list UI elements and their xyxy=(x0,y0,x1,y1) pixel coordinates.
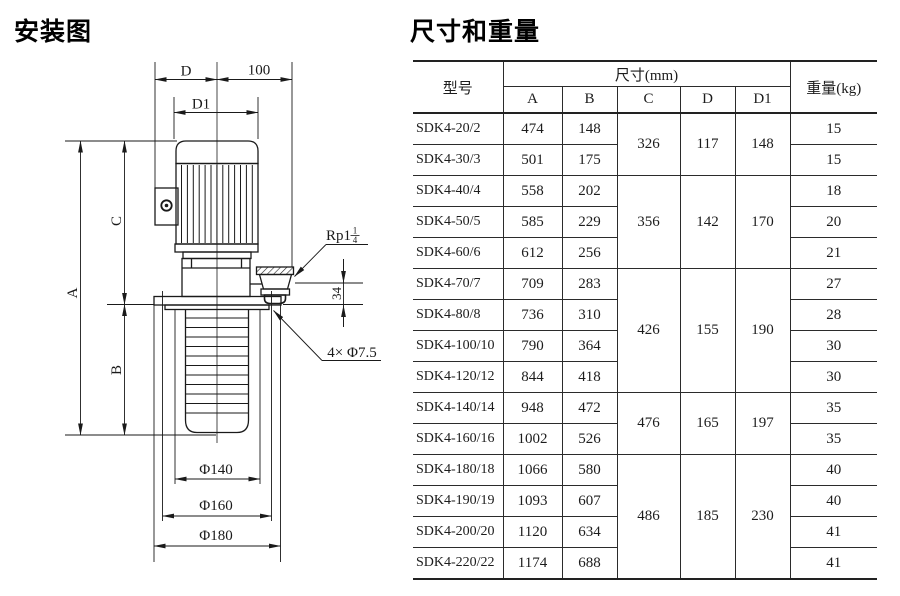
cell-model: SDK4-140/14 xyxy=(413,393,503,424)
terminal-box xyxy=(155,188,178,225)
cell-weight: 35 xyxy=(790,424,877,455)
cell-d1-merged: 190 xyxy=(735,269,790,393)
installation-drawing: D 100 D1 A C B 34 Φ140 Φ160 Φ180 4× Φ7.5… xyxy=(0,0,410,596)
cell-d-merged: 155 xyxy=(680,269,735,393)
cell-weight: 15 xyxy=(790,145,877,176)
dim-label-100: 100 xyxy=(248,63,271,79)
cell-a: 736 xyxy=(503,300,562,331)
cell-c-merged: 476 xyxy=(617,393,680,455)
cell-b: 202 xyxy=(562,176,617,207)
cell-a: 501 xyxy=(503,145,562,176)
dim-label-a: A xyxy=(65,287,81,298)
holes-label: 4× Φ7.5 xyxy=(327,345,376,361)
header-col-d1: D1 xyxy=(735,87,790,114)
dim-label-d: D xyxy=(181,64,192,80)
header-col-b: B xyxy=(562,87,617,114)
cell-a: 474 xyxy=(503,113,562,145)
pump-head xyxy=(182,259,250,297)
cell-b: 688 xyxy=(562,548,617,580)
motor-fins xyxy=(182,165,253,243)
header-row-1: 型号 尺寸(mm) 重量(kg) xyxy=(413,61,877,87)
cell-c-merged: 326 xyxy=(617,113,680,176)
table-row: SDK4-180/18106658048618523040 xyxy=(413,455,877,486)
svg-text:4: 4 xyxy=(353,235,358,245)
cell-a: 1066 xyxy=(503,455,562,486)
cell-model: SDK4-80/8 xyxy=(413,300,503,331)
cell-weight: 21 xyxy=(790,238,877,269)
cell-b: 175 xyxy=(562,145,617,176)
dim-label-phi160: Φ160 xyxy=(199,498,232,514)
cell-model: SDK4-220/22 xyxy=(413,548,503,580)
cell-model: SDK4-120/12 xyxy=(413,362,503,393)
dimensions-weight-title: 尺寸和重量 xyxy=(410,12,540,48)
table-row: SDK4-20/247414832611714815 xyxy=(413,113,877,145)
table-row: SDK4-40/455820235614217018 xyxy=(413,176,877,207)
dim-label-phi180: Φ180 xyxy=(199,528,232,544)
cell-a: 1120 xyxy=(503,517,562,548)
cell-weight: 40 xyxy=(790,455,877,486)
header-size-mm: 尺寸(mm) xyxy=(503,61,790,87)
cell-model: SDK4-40/4 xyxy=(413,176,503,207)
cell-b: 310 xyxy=(562,300,617,331)
cell-d-merged: 142 xyxy=(680,176,735,269)
cell-d1-merged: 197 xyxy=(735,393,790,455)
cell-weight: 20 xyxy=(790,207,877,238)
cell-b: 472 xyxy=(562,393,617,424)
cell-a: 1002 xyxy=(503,424,562,455)
header-model: 型号 xyxy=(413,61,503,113)
cell-d1-merged: 170 xyxy=(735,176,790,269)
cell-model: SDK4-50/5 xyxy=(413,207,503,238)
dim-label-34: 34 xyxy=(329,287,344,301)
cell-model: SDK4-70/7 xyxy=(413,269,503,300)
threaded-flange xyxy=(257,267,294,275)
catalog-page: 安装图 尺寸和重量 xyxy=(0,0,900,596)
cell-model: SDK4-180/18 xyxy=(413,455,503,486)
cell-a: 1174 xyxy=(503,548,562,580)
cell-a: 844 xyxy=(503,362,562,393)
svg-text:1: 1 xyxy=(353,226,358,236)
cell-b: 148 xyxy=(562,113,617,145)
header-weight: 重量(kg) xyxy=(790,61,877,113)
cell-weight: 15 xyxy=(790,113,877,145)
cell-b: 418 xyxy=(562,362,617,393)
cell-d-merged: 185 xyxy=(680,455,735,580)
motor xyxy=(175,141,258,259)
cell-model: SDK4-190/19 xyxy=(413,486,503,517)
header-col-c: C xyxy=(617,87,680,114)
cell-d-merged: 165 xyxy=(680,393,735,455)
thread-leader xyxy=(295,245,327,277)
dim-label-d1: D1 xyxy=(192,97,210,113)
cell-b: 229 xyxy=(562,207,617,238)
cell-b: 364 xyxy=(562,331,617,362)
cell-d1-merged: 230 xyxy=(735,455,790,580)
cell-model: SDK4-20/2 xyxy=(413,113,503,145)
cell-d1-merged: 148 xyxy=(735,113,790,176)
cell-a: 612 xyxy=(503,238,562,269)
cell-c-merged: 356 xyxy=(617,176,680,269)
cell-b: 256 xyxy=(562,238,617,269)
cell-weight: 35 xyxy=(790,393,877,424)
cell-b: 283 xyxy=(562,269,617,300)
cell-weight: 30 xyxy=(790,331,877,362)
cell-b: 634 xyxy=(562,517,617,548)
mounting-flange xyxy=(154,297,281,310)
dimensions-weight-table: 型号 尺寸(mm) 重量(kg) A B C D D1 SDK4-20/2474… xyxy=(413,60,877,580)
cell-model: SDK4-100/10 xyxy=(413,331,503,362)
cell-a: 790 xyxy=(503,331,562,362)
cell-a: 585 xyxy=(503,207,562,238)
cell-b: 526 xyxy=(562,424,617,455)
cell-weight: 41 xyxy=(790,548,877,580)
cell-model: SDK4-30/3 xyxy=(413,145,503,176)
cell-a: 1093 xyxy=(503,486,562,517)
cell-model: SDK4-200/20 xyxy=(413,517,503,548)
cell-weight: 18 xyxy=(790,176,877,207)
header-col-a: A xyxy=(503,87,562,114)
cell-a: 948 xyxy=(503,393,562,424)
cell-c-merged: 486 xyxy=(617,455,680,580)
svg-text:Rp1: Rp1 xyxy=(326,228,351,244)
cell-a: 709 xyxy=(503,269,562,300)
header-col-d: D xyxy=(680,87,735,114)
cell-b: 607 xyxy=(562,486,617,517)
cell-a: 558 xyxy=(503,176,562,207)
table-row: SDK4-70/770928342615519027 xyxy=(413,269,877,300)
cell-model: SDK4-60/6 xyxy=(413,238,503,269)
cell-b: 580 xyxy=(562,455,617,486)
cell-weight: 30 xyxy=(790,362,877,393)
cell-d-merged: 117 xyxy=(680,113,735,176)
table-row: SDK4-140/1494847247616519735 xyxy=(413,393,877,424)
cell-c-merged: 426 xyxy=(617,269,680,393)
dim-label-c: C xyxy=(109,216,125,226)
cell-weight: 40 xyxy=(790,486,877,517)
cell-model: SDK4-160/16 xyxy=(413,424,503,455)
cell-weight: 27 xyxy=(790,269,877,300)
thread-label: Rp1 1 4 xyxy=(326,226,360,246)
cell-weight: 28 xyxy=(790,300,877,331)
dim-label-b: B xyxy=(109,365,125,375)
cell-weight: 41 xyxy=(790,517,877,548)
dim-label-phi140: Φ140 xyxy=(199,462,232,478)
